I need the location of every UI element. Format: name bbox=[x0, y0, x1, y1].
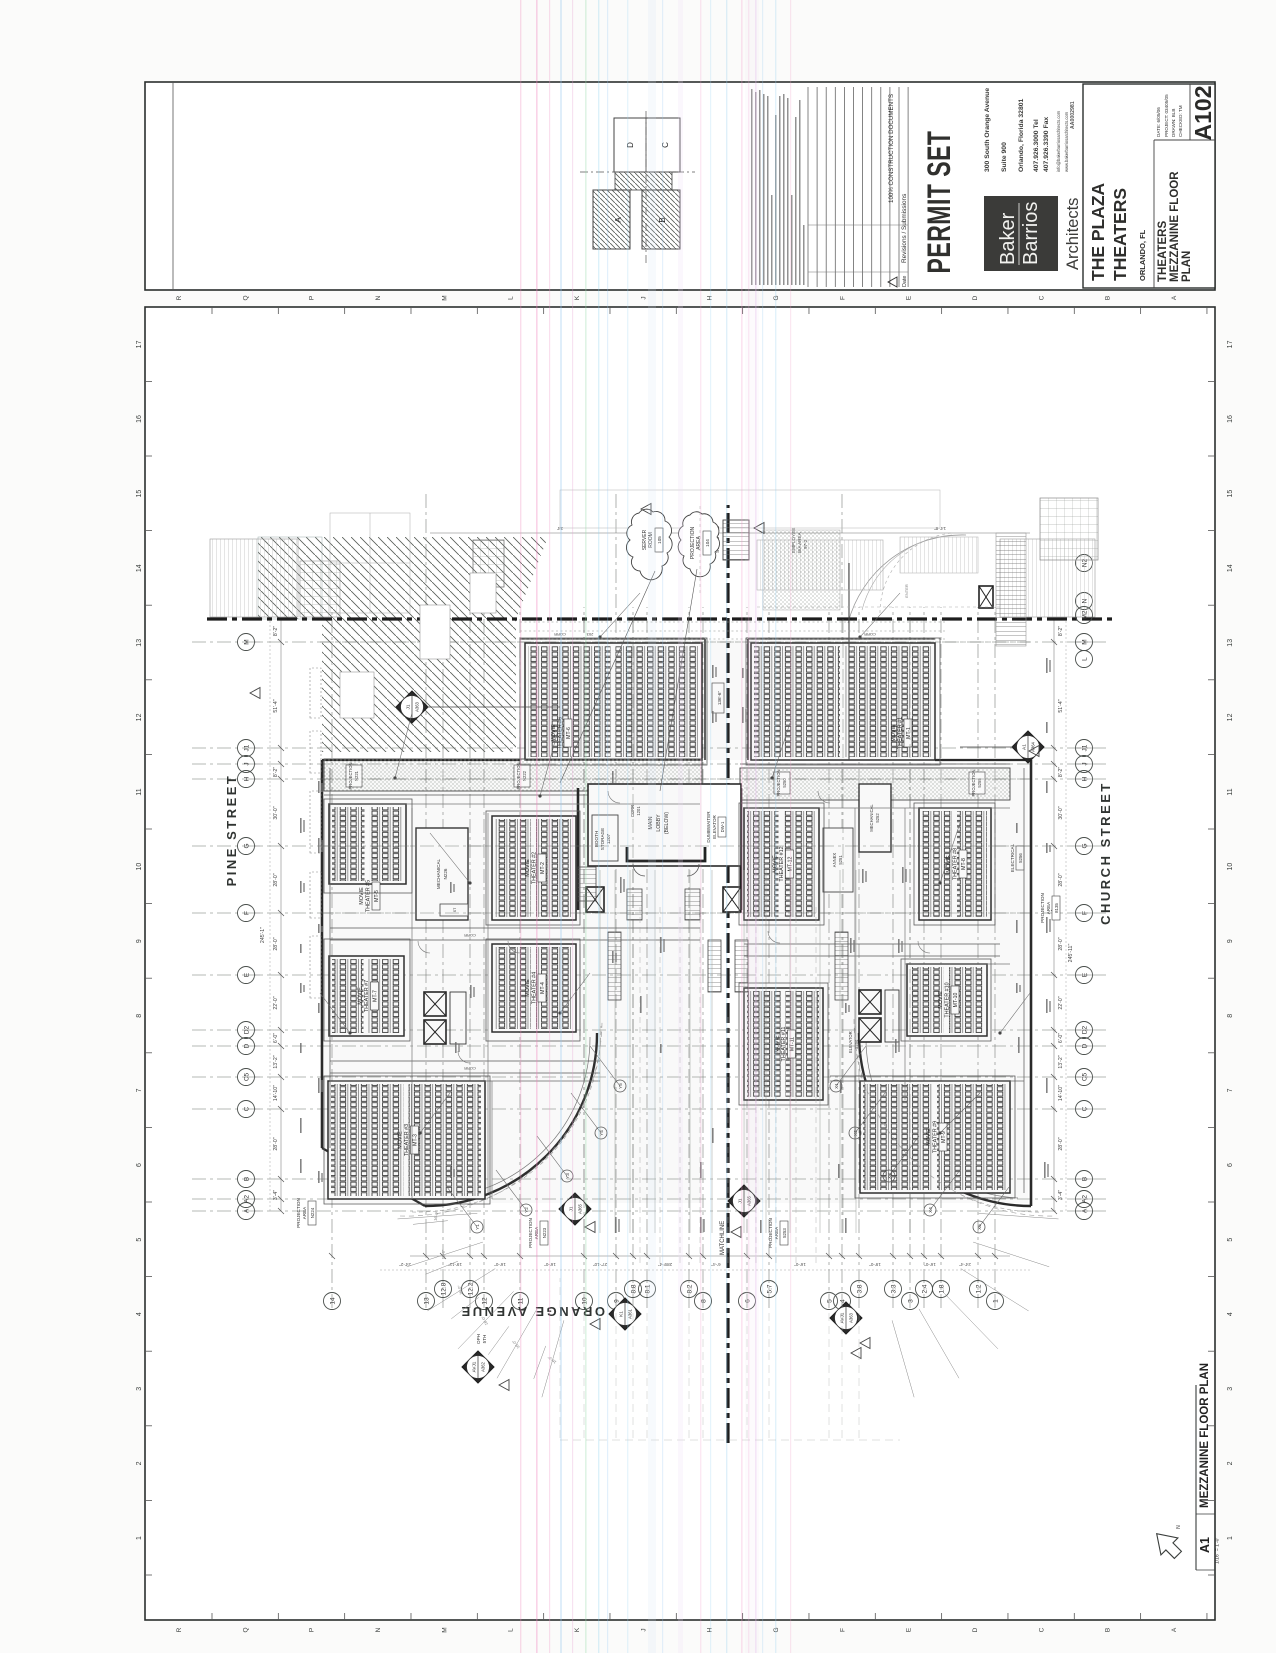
svg-text:Orlando, Florida 32801: Orlando, Florida 32801 bbox=[1018, 99, 1025, 172]
svg-text:10: 10 bbox=[1227, 863, 1234, 871]
svg-text:245'-1": 245'-1" bbox=[260, 927, 266, 943]
svg-text:14: 14 bbox=[136, 564, 143, 572]
svg-text:D: D bbox=[972, 295, 979, 300]
svg-text:D: D bbox=[243, 1043, 250, 1048]
svg-text:CORR: CORR bbox=[554, 632, 566, 637]
svg-text:M: M bbox=[441, 295, 448, 300]
svg-text:1: 1 bbox=[1227, 1536, 1234, 1540]
svg-text:THEATERS: THEATERS bbox=[1157, 221, 1169, 282]
svg-text:100% CONSTRUCTION DOCUMENTS: 100% CONSTRUCTION DOCUMENTS bbox=[888, 94, 895, 203]
svg-text:407.926.3000 Tel: 407.926.3000 Tel bbox=[1033, 119, 1040, 172]
svg-text:28'-0": 28'-0" bbox=[1058, 1137, 1064, 1150]
svg-text:12.8: 12.8 bbox=[440, 1282, 447, 1295]
svg-text:E: E bbox=[906, 295, 913, 300]
svg-text:ORANGE AVENUE: ORANGE AVENUE bbox=[459, 1304, 605, 1319]
svg-text:P: P bbox=[309, 1628, 316, 1632]
svg-text:28'-0": 28'-0" bbox=[1058, 873, 1064, 886]
svg-text:15: 15 bbox=[1227, 490, 1234, 498]
svg-text:3: 3 bbox=[907, 1299, 914, 1303]
svg-text:Q: Q bbox=[242, 295, 249, 300]
svg-text:L: L bbox=[1081, 657, 1088, 661]
svg-text:A363: A363 bbox=[415, 701, 420, 711]
svg-text:17: 17 bbox=[136, 340, 143, 348]
svg-text:13: 13 bbox=[423, 1297, 430, 1305]
svg-text:8'-2": 8'-2" bbox=[273, 626, 279, 636]
svg-text:ELEVATOR: ELEVATOR bbox=[712, 814, 717, 838]
svg-text:G: G bbox=[773, 295, 780, 300]
svg-text:THEATERS: THEATERS bbox=[1110, 188, 1130, 281]
svg-text:12: 12 bbox=[481, 1297, 488, 1305]
svg-text:10: 10 bbox=[581, 1297, 588, 1305]
svg-text:5.7: 5.7 bbox=[766, 1284, 773, 1293]
svg-text:3: 3 bbox=[1227, 1387, 1234, 1391]
svg-text:14: 14 bbox=[1227, 564, 1234, 572]
svg-text:7: 7 bbox=[136, 1088, 143, 1092]
svg-text:16'-0": 16'-0" bbox=[924, 1262, 936, 1267]
svg-text:12.2: 12.2 bbox=[467, 1282, 474, 1295]
svg-text:CORR: CORR bbox=[864, 632, 876, 637]
svg-text:16: 16 bbox=[136, 415, 143, 423]
svg-text:C5: C5 bbox=[243, 1072, 250, 1081]
svg-text:G: G bbox=[773, 1627, 780, 1632]
svg-text:F: F bbox=[839, 1628, 846, 1632]
svg-text:1: 1 bbox=[992, 1299, 999, 1303]
svg-text:MEZZANINE FLOOR: MEZZANINE FLOOR bbox=[1169, 171, 1181, 282]
svg-text:PERMIT SET: PERMIT SET bbox=[920, 131, 957, 274]
svg-text:L: L bbox=[508, 296, 515, 300]
svg-text:C: C bbox=[1038, 295, 1045, 300]
svg-text:3'-4": 3'-4" bbox=[1058, 1190, 1064, 1200]
svg-text:9: 9 bbox=[136, 939, 143, 943]
svg-text:DW-1: DW-1 bbox=[720, 821, 725, 832]
svg-text:CHURCH STREET: CHURCH STREET bbox=[1098, 781, 1113, 925]
svg-text:5: 5 bbox=[1227, 1238, 1234, 1242]
svg-text:13: 13 bbox=[1227, 639, 1234, 647]
svg-text:Y2: Y2 bbox=[524, 1207, 529, 1213]
svg-text:8.8: 8.8 bbox=[630, 1284, 637, 1293]
svg-text:Baker: Baker bbox=[997, 212, 1019, 265]
svg-text:17: 17 bbox=[1227, 340, 1234, 348]
svg-text:J: J bbox=[640, 296, 647, 299]
svg-text:245'-11": 245'-11" bbox=[1068, 944, 1074, 963]
svg-text:14'-10": 14'-10" bbox=[1058, 1085, 1064, 1101]
svg-text:13: 13 bbox=[136, 639, 143, 647]
svg-text:8'-2": 8'-2" bbox=[273, 767, 279, 777]
svg-text:L: L bbox=[508, 1628, 515, 1632]
svg-text:K1: K1 bbox=[619, 1311, 624, 1317]
svg-text:F: F bbox=[243, 911, 250, 915]
svg-text:P: P bbox=[309, 296, 316, 300]
svg-text:3: 3 bbox=[136, 1387, 143, 1391]
svg-text:D2: D2 bbox=[243, 1025, 250, 1034]
svg-text:3.8: 3.8 bbox=[856, 1284, 863, 1293]
svg-text:8: 8 bbox=[136, 1014, 143, 1018]
svg-text:5: 5 bbox=[826, 1299, 833, 1303]
svg-text:AREA: AREA bbox=[774, 1226, 779, 1239]
svg-text:Date: Date bbox=[902, 276, 908, 287]
svg-text:J1: J1 bbox=[243, 744, 250, 751]
svg-text:N: N bbox=[375, 1627, 382, 1632]
svg-text:OPH: OPH bbox=[476, 1334, 481, 1344]
svg-text:B/A AREA: B/A AREA bbox=[797, 531, 802, 553]
svg-text:M2: M2 bbox=[1081, 610, 1088, 619]
svg-text:4: 4 bbox=[1227, 1312, 1234, 1316]
svg-text:E: E bbox=[906, 1627, 913, 1632]
svg-text:51'-4": 51'-4" bbox=[273, 699, 279, 712]
svg-text:PINE STREET: PINE STREET bbox=[224, 774, 239, 887]
svg-text:27'-10": 27'-10" bbox=[593, 1262, 608, 1267]
svg-text:8135: 8135 bbox=[1054, 903, 1059, 913]
svg-text:10: 10 bbox=[136, 863, 143, 871]
svg-text:AREA: AREA bbox=[1046, 901, 1051, 914]
svg-text:5: 5 bbox=[136, 1238, 143, 1242]
svg-text:24'-4": 24'-4" bbox=[959, 1262, 971, 1267]
svg-text:105: 105 bbox=[657, 536, 662, 544]
svg-text:PROJECTION: PROJECTION bbox=[528, 1218, 533, 1248]
svg-text:E: E bbox=[243, 972, 250, 977]
svg-text:6'-0": 6'-0" bbox=[273, 1033, 279, 1043]
svg-text:30'-0": 30'-0" bbox=[273, 806, 279, 819]
svg-text:28'-0": 28'-0" bbox=[273, 937, 279, 950]
svg-text:Barrios: Barrios bbox=[1020, 202, 1042, 265]
svg-text:E: E bbox=[1081, 972, 1088, 977]
svg-text:X5: X5 bbox=[977, 1224, 982, 1230]
svg-text:Suite 900: Suite 900 bbox=[1001, 142, 1008, 172]
svg-text:A362: A362 bbox=[481, 1361, 486, 1371]
svg-text:289'-4": 289'-4" bbox=[658, 1262, 673, 1267]
svg-text:PROJECTION: PROJECTION bbox=[768, 1218, 773, 1248]
svg-text:7: 7 bbox=[1227, 1088, 1234, 1092]
svg-text:N223: N223 bbox=[542, 1227, 547, 1238]
svg-text:R: R bbox=[176, 295, 183, 300]
svg-text:12: 12 bbox=[1227, 713, 1234, 721]
svg-text:13'-2": 13'-2" bbox=[273, 1055, 279, 1068]
svg-text:A: A bbox=[614, 217, 623, 223]
svg-text:A: A bbox=[1171, 1627, 1178, 1632]
svg-text:PROJECT: 03405/05: PROJECT: 03405/05 bbox=[1164, 94, 1169, 137]
svg-text:16: 16 bbox=[1227, 415, 1234, 423]
svg-text:8'-2": 8'-2" bbox=[1058, 767, 1064, 777]
svg-text:9: 9 bbox=[613, 1299, 620, 1303]
svg-text:THE PLAZA: THE PLAZA bbox=[1088, 182, 1108, 281]
svg-text:ENTER: ENTER bbox=[904, 584, 909, 598]
svg-text:14: 14 bbox=[329, 1297, 336, 1305]
svg-text:A363: A363 bbox=[849, 1312, 854, 1322]
svg-text:A: A bbox=[1081, 1208, 1088, 1213]
svg-text:11: 11 bbox=[1227, 788, 1234, 795]
svg-text:407.926.3390 Fax: 407.926.3390 Fax bbox=[1043, 117, 1050, 172]
svg-text:M: M bbox=[441, 1627, 448, 1632]
svg-text:8.2: 8.2 bbox=[686, 1284, 693, 1293]
svg-text:C: C bbox=[1038, 1627, 1045, 1632]
svg-text:16'-0": 16'-0" bbox=[794, 1262, 806, 1267]
svg-text:DRAWN: BLB: DRAWN: BLB bbox=[1171, 109, 1176, 137]
svg-text:ORLANDO, FL: ORLANDO, FL bbox=[1138, 229, 1147, 281]
svg-text:22'-0": 22'-0" bbox=[1058, 996, 1064, 1009]
svg-text:28'-0": 28'-0" bbox=[273, 873, 279, 886]
svg-text:N: N bbox=[1176, 1525, 1182, 1529]
svg-text:11: 11 bbox=[136, 788, 143, 795]
svg-text:16'-0": 16'-0" bbox=[442, 1249, 446, 1259]
svg-text:2.4: 2.4 bbox=[921, 1284, 928, 1293]
svg-text:AREA: AREA bbox=[302, 1206, 307, 1219]
svg-text:Architects: Architects bbox=[1064, 198, 1082, 270]
svg-text:X4: X4 bbox=[928, 1207, 933, 1213]
svg-text:6: 6 bbox=[136, 1163, 143, 1167]
svg-text:A365: A365 bbox=[578, 1203, 583, 1213]
svg-text:6'-0": 6'-0" bbox=[1058, 1033, 1064, 1043]
svg-text:AVJ1: AVJ1 bbox=[472, 1361, 477, 1372]
svg-text:PROJECTION: PROJECTION bbox=[296, 1198, 301, 1228]
svg-text:M: M bbox=[243, 639, 250, 644]
svg-text:2: 2 bbox=[1227, 1461, 1234, 1465]
svg-text:104: 104 bbox=[705, 539, 710, 547]
svg-text:3'-4": 3'-4" bbox=[273, 1190, 279, 1200]
svg-text:G: G bbox=[243, 843, 250, 848]
svg-text:A2: A2 bbox=[243, 1195, 250, 1203]
svg-text:1: 1 bbox=[136, 1536, 143, 1540]
svg-text:5TH: 5TH bbox=[482, 1335, 487, 1344]
svg-text:PLAN: PLAN bbox=[1181, 251, 1193, 282]
svg-text:1.2: 1.2 bbox=[975, 1284, 982, 1293]
svg-text:6'-4": 6'-4" bbox=[711, 1262, 721, 1267]
svg-text:Revisions / Submissions: Revisions / Submissions bbox=[901, 194, 908, 263]
svg-text:PROJECTION: PROJECTION bbox=[1040, 893, 1045, 923]
svg-text:D: D bbox=[972, 1627, 979, 1632]
svg-text:AA0002981: AA0002981 bbox=[1070, 101, 1076, 129]
svg-text:N224: N224 bbox=[310, 1207, 315, 1218]
svg-text:1/16" = 1'-0": 1/16" = 1'-0" bbox=[1215, 1537, 1221, 1564]
svg-text:A: A bbox=[243, 1208, 250, 1213]
svg-text:13'-2": 13'-2" bbox=[1058, 1055, 1064, 1068]
svg-text:www.bakerbarriosarchitects.com: www.bakerbarriosarchitects.com bbox=[1064, 111, 1069, 172]
svg-text:4: 4 bbox=[136, 1312, 143, 1316]
svg-text:30'-0": 30'-0" bbox=[1058, 806, 1064, 819]
svg-text:3.3: 3.3 bbox=[890, 1284, 897, 1293]
svg-text:info@bakerbarriosarchitects.co: info@bakerbarriosarchitects.com bbox=[1056, 110, 1061, 172]
svg-text:6: 6 bbox=[1227, 1163, 1234, 1167]
svg-text:A1: A1 bbox=[1198, 1537, 1212, 1553]
svg-text:A364: A364 bbox=[1031, 741, 1036, 751]
svg-text:B: B bbox=[243, 1177, 250, 1181]
svg-text:J: J bbox=[243, 762, 250, 765]
svg-text:28'-0": 28'-0" bbox=[273, 1137, 279, 1150]
svg-text:2: 2 bbox=[136, 1461, 143, 1465]
svg-text:B: B bbox=[1105, 296, 1112, 300]
svg-text:A: A bbox=[1171, 295, 1178, 300]
svg-text:19'-0": 19'-0" bbox=[869, 1262, 881, 1267]
svg-text:97-2: 97-2 bbox=[803, 539, 808, 549]
svg-text:28'-0": 28'-0" bbox=[1058, 937, 1064, 950]
svg-text:1.8: 1.8 bbox=[938, 1284, 945, 1293]
svg-text:8: 8 bbox=[1227, 1014, 1234, 1018]
svg-text:14'-10": 14'-10" bbox=[273, 1085, 279, 1101]
svg-text:F: F bbox=[839, 296, 846, 300]
svg-text:K: K bbox=[574, 1627, 581, 1632]
svg-text:51'-4": 51'-4" bbox=[1058, 699, 1064, 712]
svg-text:15: 15 bbox=[136, 490, 143, 498]
svg-text:22'-0": 22'-0" bbox=[273, 996, 279, 1009]
svg-text:Q: Q bbox=[242, 1627, 249, 1632]
svg-text:EMPLOYEE: EMPLOYEE bbox=[791, 528, 796, 553]
svg-text:5253: 5253 bbox=[782, 1228, 787, 1238]
svg-text:C: C bbox=[243, 1106, 250, 1111]
svg-text:300 South Orange Avenue: 300 South Orange Avenue bbox=[984, 88, 991, 172]
svg-text:203: 203 bbox=[586, 632, 593, 637]
svg-text:9: 9 bbox=[1227, 939, 1234, 943]
svg-text:B: B bbox=[1105, 1628, 1112, 1632]
svg-text:N: N bbox=[375, 295, 382, 300]
svg-text:Y1: Y1 bbox=[475, 1224, 480, 1230]
svg-text:J1: J1 bbox=[406, 704, 411, 709]
svg-text:R: R bbox=[176, 1627, 183, 1632]
svg-text:J: J bbox=[640, 1628, 647, 1631]
svg-text:H: H bbox=[243, 776, 250, 781]
svg-text:12: 12 bbox=[136, 713, 143, 721]
svg-text:DATE: 6/05/06: DATE: 6/05/06 bbox=[1156, 107, 1161, 137]
svg-text:A1: A1 bbox=[1022, 744, 1027, 750]
svg-text:8'-2": 8'-2" bbox=[1058, 626, 1064, 636]
svg-text:16'-0": 16'-0" bbox=[494, 1262, 506, 1267]
svg-text:MEZZANINE FLOOR PLAN: MEZZANINE FLOOR PLAN bbox=[1199, 1363, 1211, 1508]
svg-text:K: K bbox=[574, 295, 581, 300]
svg-text:CHECKED: TM: CHECKED: TM bbox=[1178, 105, 1183, 137]
svg-text:MATCHLINE: MATCHLINE bbox=[720, 1221, 726, 1255]
svg-text:A102: A102 bbox=[1190, 86, 1216, 141]
svg-text:8: 8 bbox=[700, 1299, 707, 1303]
